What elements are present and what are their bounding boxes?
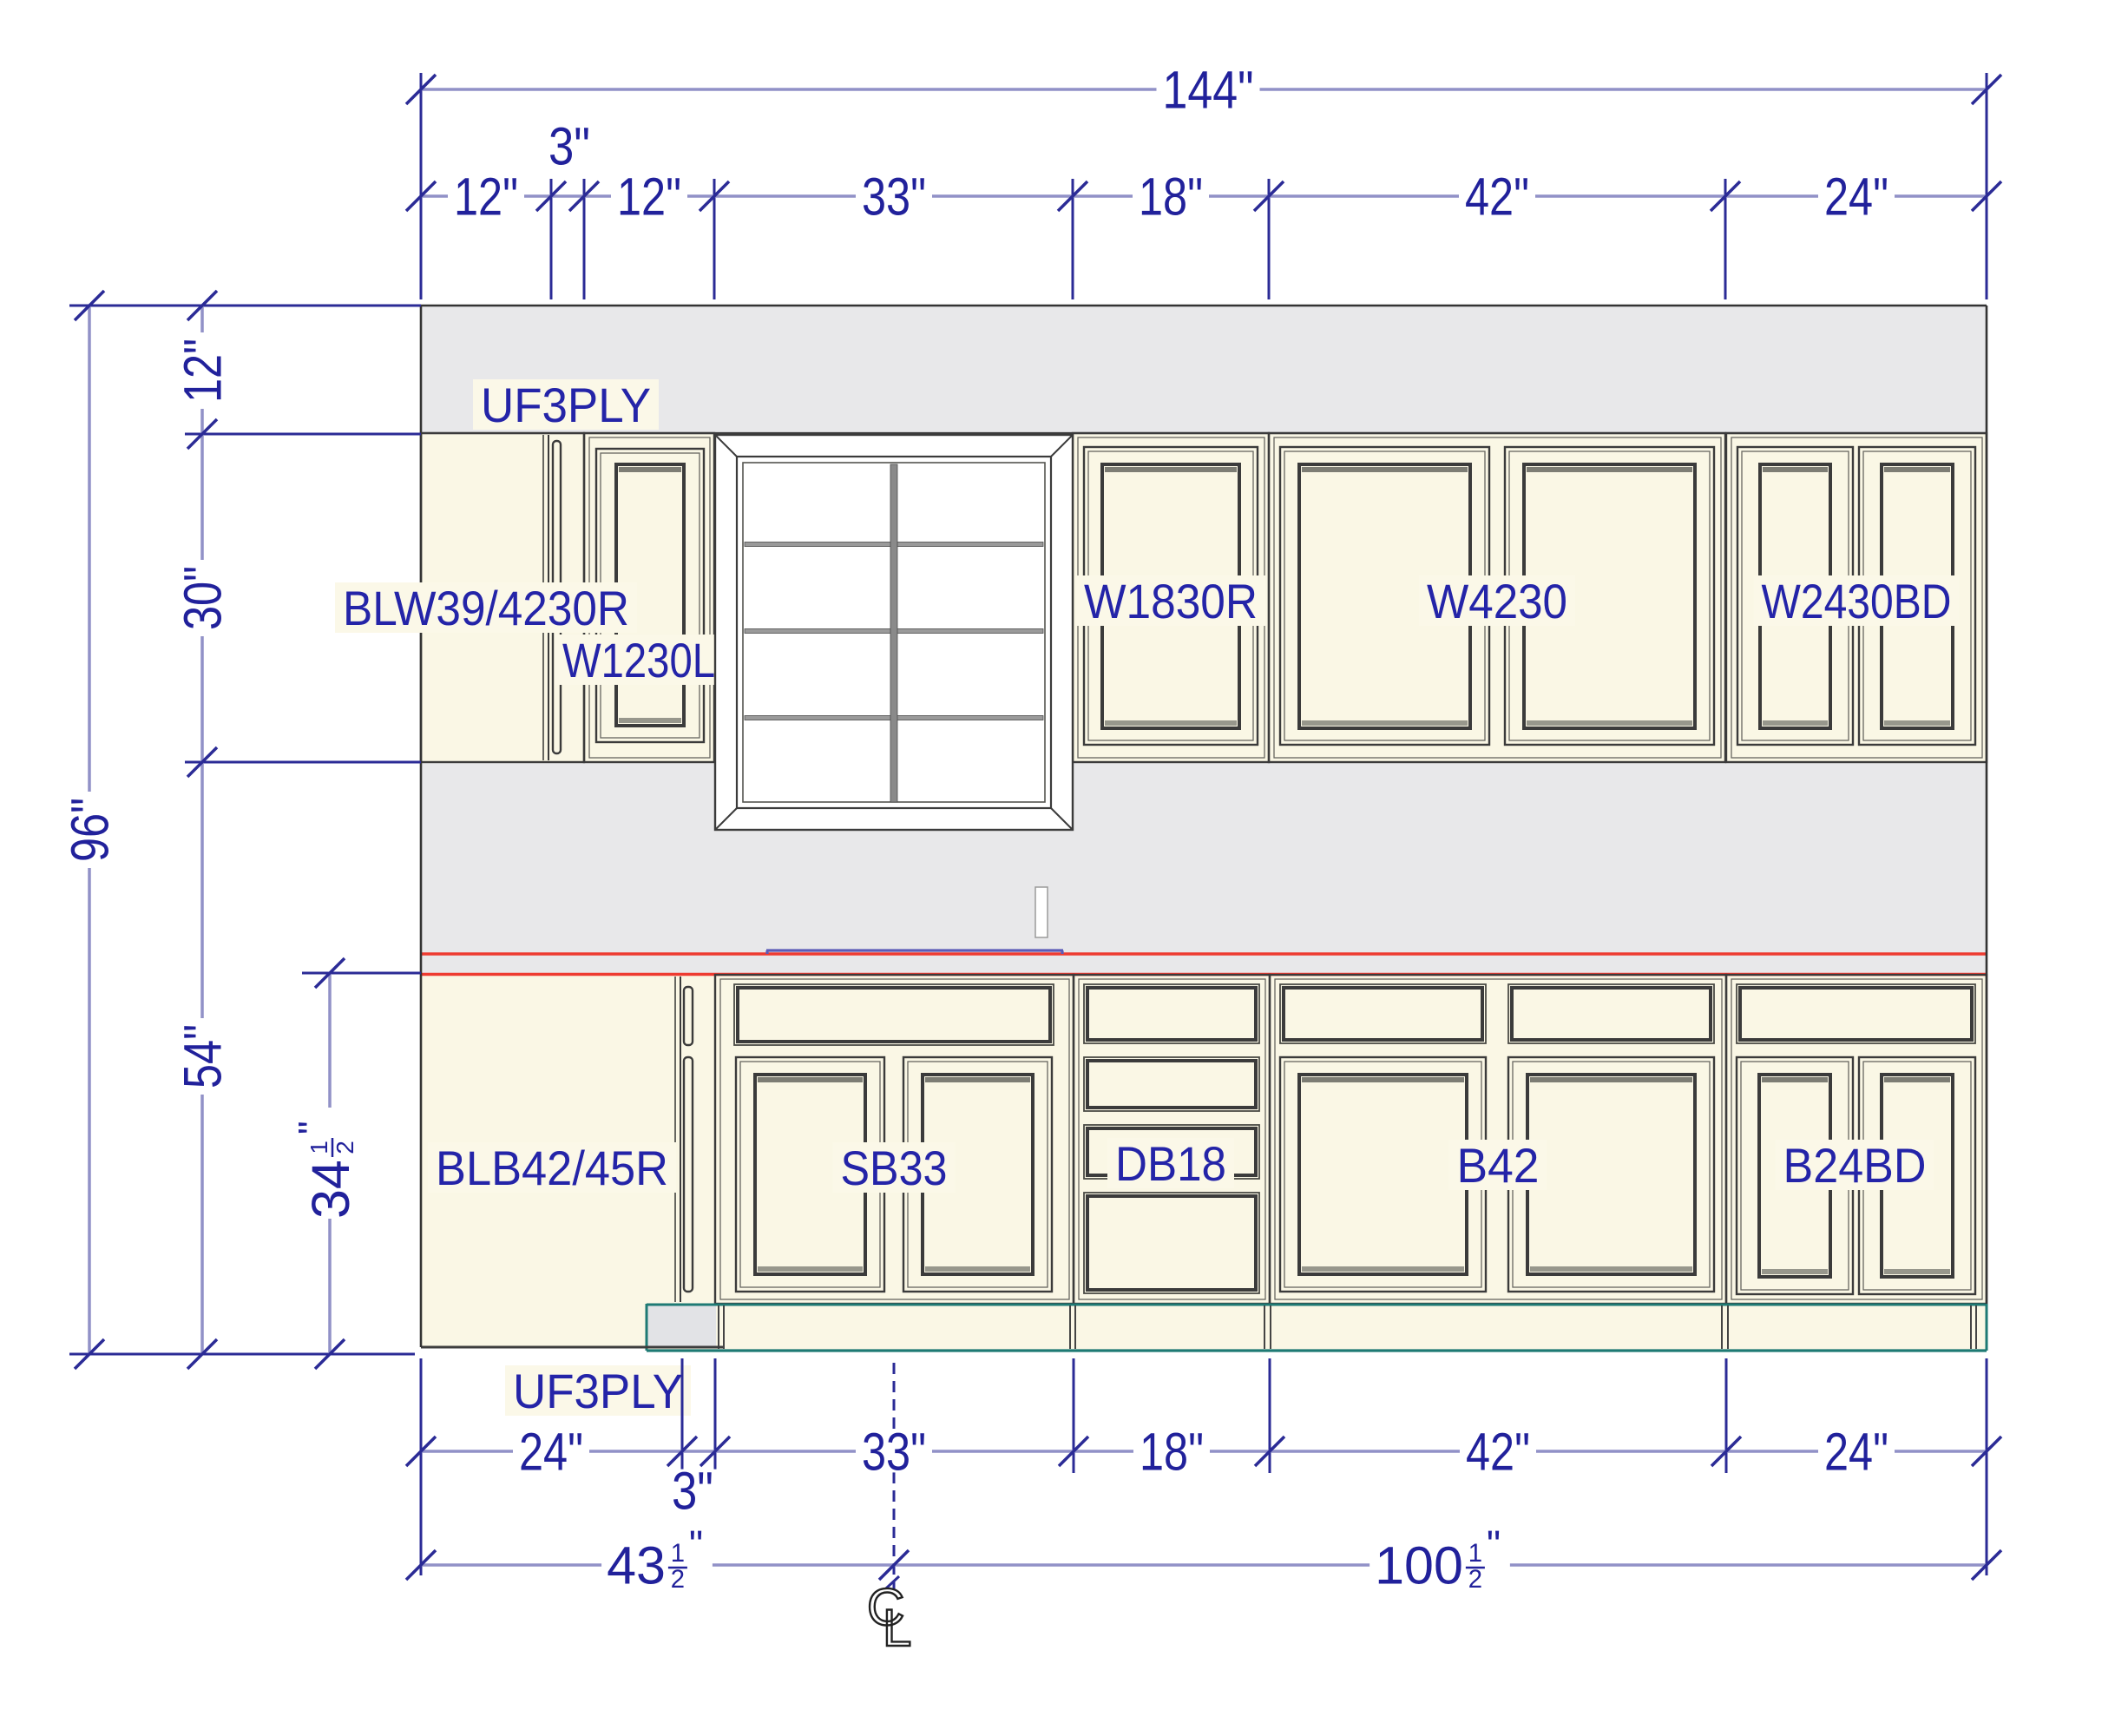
svg-text:W1230L: W1230L xyxy=(562,633,715,687)
svg-text:BLB42/45R: BLB42/45R xyxy=(436,1141,668,1195)
svg-text:100: 100 xyxy=(1375,1536,1463,1595)
svg-text:96": 96" xyxy=(61,798,120,862)
svg-text:12": 12" xyxy=(617,168,681,227)
svg-text:W2430BD: W2430BD xyxy=(1762,574,1952,628)
svg-text:B24BD: B24BD xyxy=(1783,1138,1927,1193)
svg-text:24": 24" xyxy=(1824,1423,1888,1482)
svg-text:54": 54" xyxy=(174,1024,233,1088)
svg-text:W1830R: W1830R xyxy=(1084,574,1258,628)
svg-text:2: 2 xyxy=(332,1141,358,1154)
svg-text:33": 33" xyxy=(862,1423,926,1482)
svg-text:30": 30" xyxy=(174,566,233,630)
svg-text:18": 18" xyxy=(1140,1423,1204,1482)
svg-text:2: 2 xyxy=(671,1565,685,1594)
svg-text:L: L xyxy=(883,1599,911,1657)
svg-text:B42: B42 xyxy=(1457,1138,1540,1193)
svg-text:1: 1 xyxy=(671,1539,685,1568)
svg-text:42": 42" xyxy=(1466,1423,1530,1482)
svg-text:W4230: W4230 xyxy=(1427,574,1567,628)
svg-text:18": 18" xyxy=(1139,168,1203,227)
svg-text:": " xyxy=(291,1121,333,1134)
svg-text:3": 3" xyxy=(672,1462,713,1521)
svg-text:42": 42" xyxy=(1465,168,1529,227)
svg-text:12": 12" xyxy=(454,168,518,227)
svg-text:UF3PLY: UF3PLY xyxy=(513,1364,683,1418)
svg-text:24": 24" xyxy=(519,1423,583,1482)
svg-text:144": 144" xyxy=(1163,61,1254,120)
svg-text:": " xyxy=(1487,1522,1501,1567)
svg-text:3": 3" xyxy=(548,117,590,176)
svg-text:2: 2 xyxy=(1468,1565,1482,1594)
svg-text:": " xyxy=(689,1522,703,1567)
svg-text:12": 12" xyxy=(174,339,233,403)
svg-text:24": 24" xyxy=(1824,168,1888,227)
svg-text:1: 1 xyxy=(305,1141,332,1154)
svg-text:1: 1 xyxy=(1468,1539,1482,1568)
svg-text:UF3PLY: UF3PLY xyxy=(481,378,651,432)
svg-text:34: 34 xyxy=(301,1160,360,1219)
svg-text:DB18: DB18 xyxy=(1115,1136,1226,1191)
svg-text:43: 43 xyxy=(607,1536,666,1595)
svg-text:33": 33" xyxy=(862,168,926,227)
svg-text:BLW39/4230R: BLW39/4230R xyxy=(343,581,629,635)
svg-text:SB33: SB33 xyxy=(841,1141,948,1195)
